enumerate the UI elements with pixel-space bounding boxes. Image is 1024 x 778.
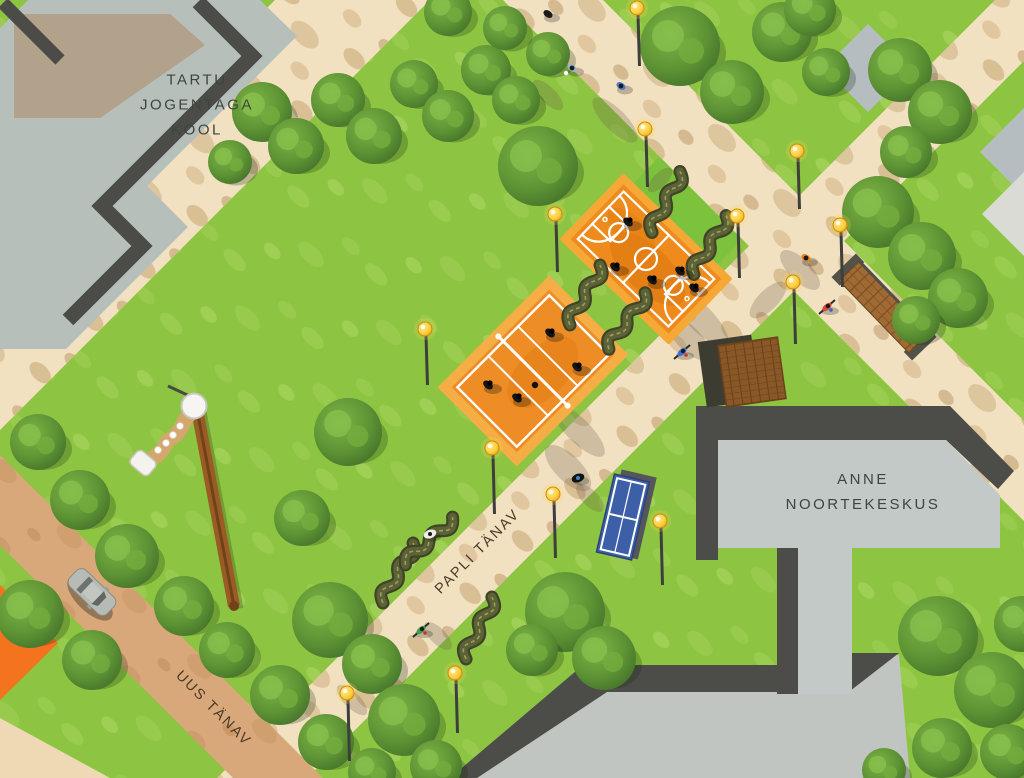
school-label-line1: TARTU <box>140 68 254 93</box>
youth-center-label-line1: ANNE <box>786 467 941 492</box>
building-walkway <box>798 548 852 694</box>
lamp-globe <box>485 441 499 455</box>
lamp-globe <box>833 218 847 232</box>
zipline-platform <box>182 394 207 419</box>
ball <box>532 382 538 388</box>
lamp-globe <box>638 122 652 136</box>
school-label: TARTU JOGENTAGA KOOL <box>140 68 254 143</box>
lamp-globe <box>548 207 562 221</box>
lamp-globe <box>418 322 432 336</box>
lamp-globe <box>786 275 800 289</box>
lamp-globe <box>790 144 804 158</box>
lamp-globe <box>730 209 744 223</box>
wooden-deck <box>698 335 786 408</box>
park-map-illustration: TARTU JOGENTAGA KOOL ANNE NOORTEKESKUS P… <box>0 0 1024 778</box>
school-label-line3: KOOL <box>140 118 254 143</box>
lamp-globe <box>653 514 667 528</box>
lamp-globe <box>448 666 462 680</box>
youth-center-label-line2: NOORTEKESKUS <box>786 492 941 517</box>
lamp-globe <box>340 686 354 700</box>
lamp-globe <box>546 487 560 501</box>
school-label-line2: JOGENTAGA <box>140 93 254 118</box>
youth-center-label: ANNE NOORTEKESKUS <box>786 467 941 517</box>
lamp-globe <box>630 1 644 15</box>
